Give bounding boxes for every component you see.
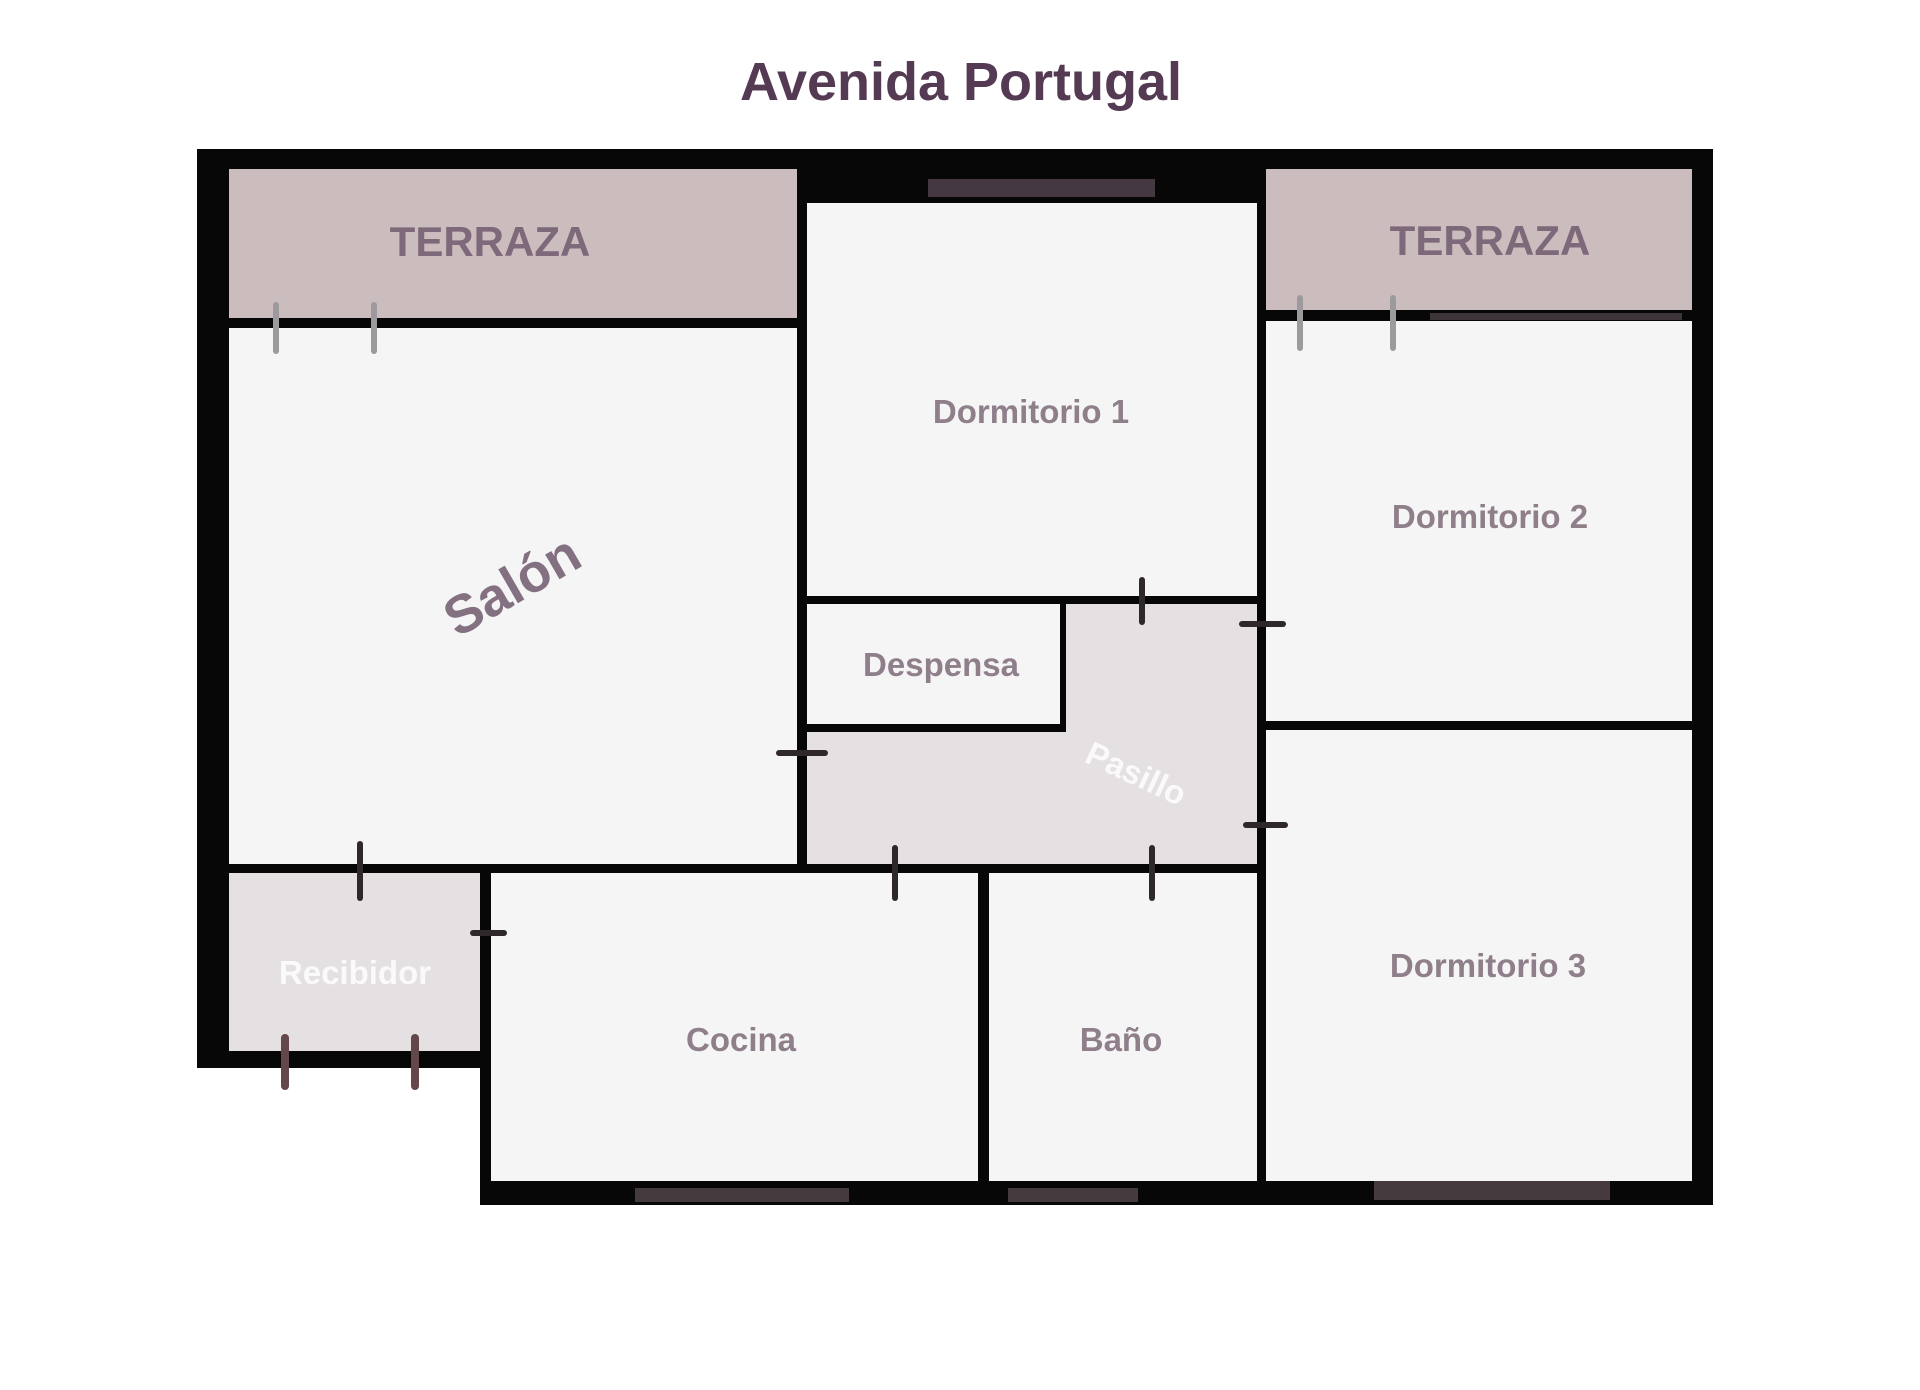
svg-text:Dormitorio 1: Dormitorio 1 bbox=[933, 393, 1129, 430]
svg-text:Dormitorio 2: Dormitorio 2 bbox=[1392, 498, 1588, 535]
svg-text:Dormitorio 3: Dormitorio 3 bbox=[1390, 947, 1586, 984]
svg-text:Cocina: Cocina bbox=[686, 1021, 797, 1058]
svg-text:Despensa: Despensa bbox=[863, 646, 1020, 683]
svg-text:Avenida Portugal: Avenida Portugal bbox=[740, 52, 1182, 112]
svg-text:Recibidor: Recibidor bbox=[279, 954, 431, 991]
svg-text:TERRAZA: TERRAZA bbox=[390, 218, 591, 265]
svg-text:Baño: Baño bbox=[1080, 1021, 1163, 1058]
svg-text:TERRAZA: TERRAZA bbox=[1390, 217, 1591, 264]
